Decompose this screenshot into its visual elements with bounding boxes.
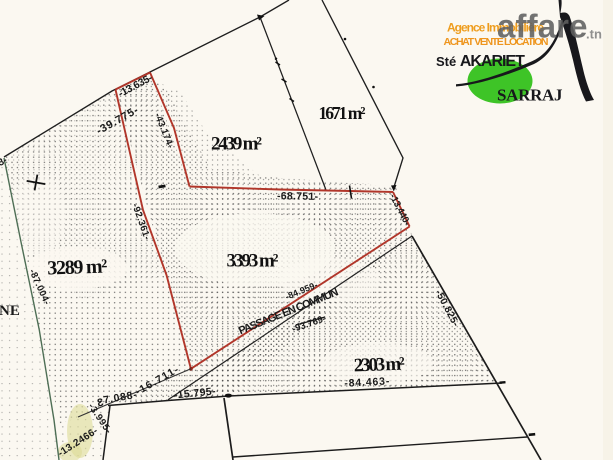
svg-text:2303 m²: 2303 m²: [353, 354, 405, 377]
svg-text:2439 m²: 2439 m²: [211, 134, 262, 155]
svg-text:3289 m²: 3289 m²: [47, 255, 108, 279]
svg-text:SARRAJ: SARRAJ: [497, 86, 564, 105]
svg-text:-68.751-: -68.751-: [277, 190, 319, 203]
svg-text:NE: NE: [0, 303, 20, 319]
svg-text:affare: affare: [497, 8, 587, 45]
svg-text:Sté AKARIET: Sté AKARIET: [436, 53, 526, 70]
svg-text:-84.463-: -84.463-: [344, 375, 390, 389]
svg-text:.tn: .tn: [586, 27, 602, 42]
svg-text:3393 m²: 3393 m²: [227, 251, 279, 272]
svg-text:1671 m²: 1671 m²: [319, 103, 366, 123]
